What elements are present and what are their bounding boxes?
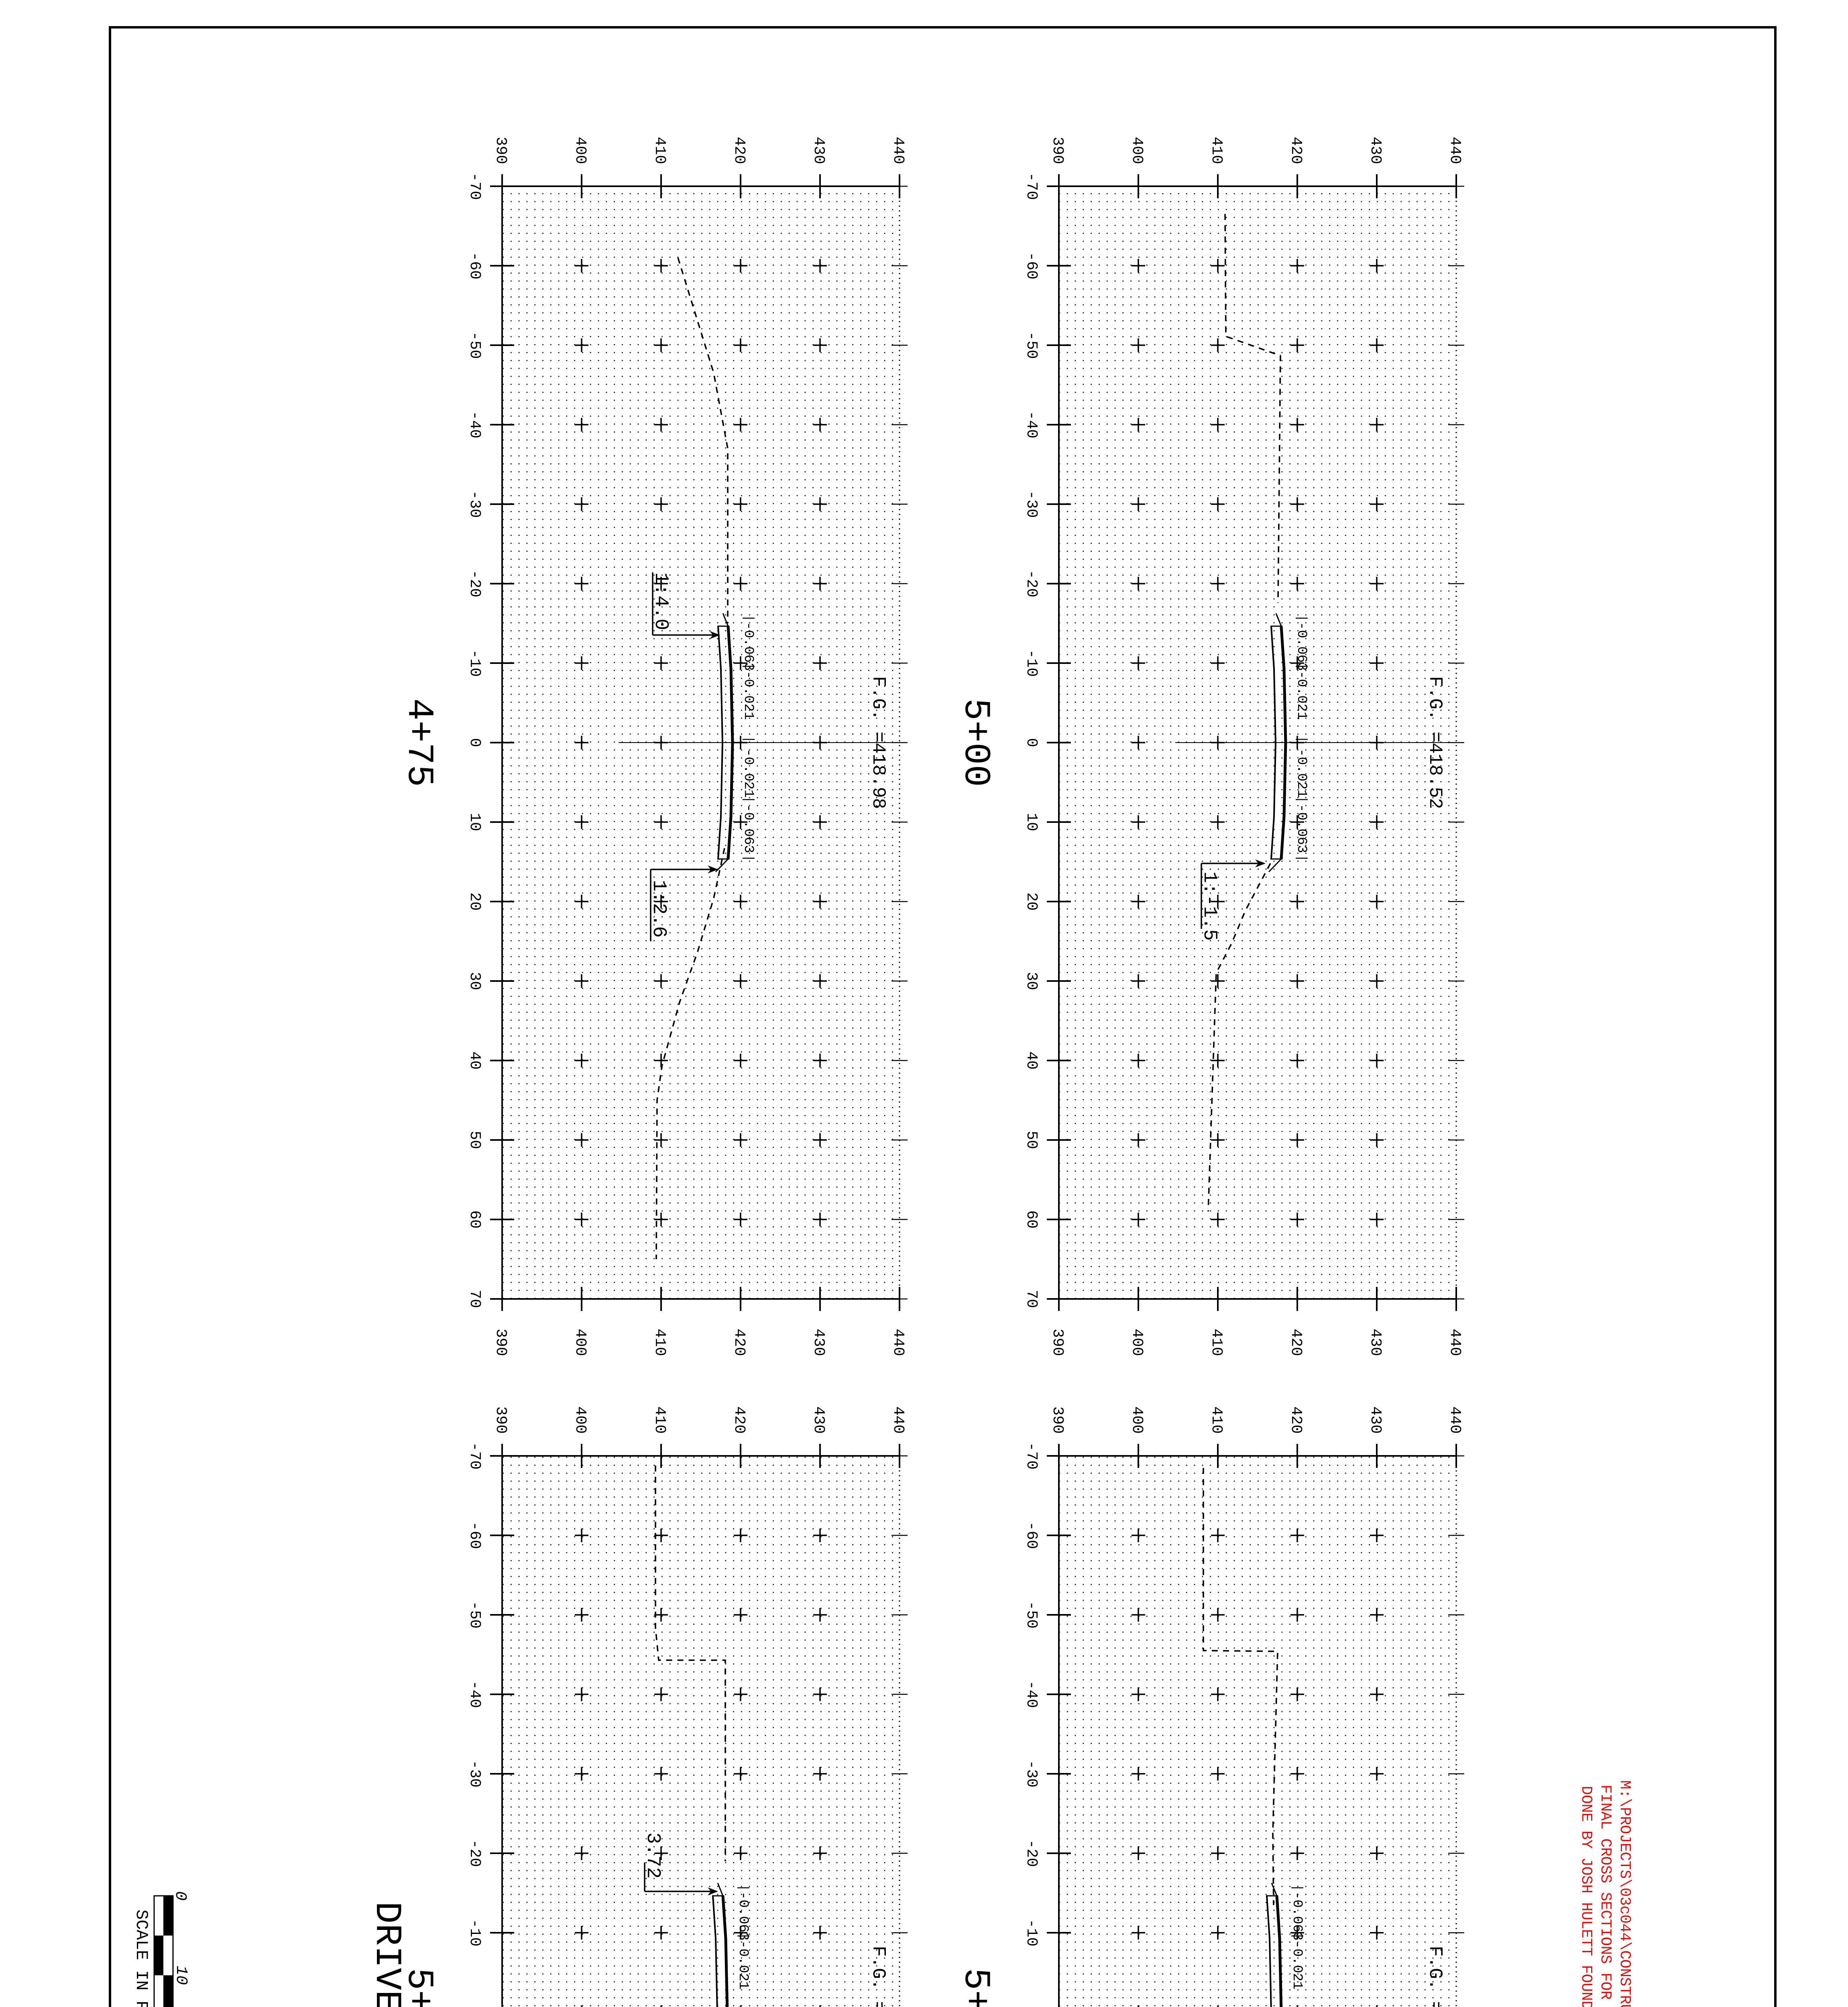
svg-text:-70: -70: [466, 1442, 483, 1470]
svg-text:-70: -70: [1023, 1442, 1040, 1470]
svg-text:390: 390: [492, 1407, 509, 1434]
svg-text:390: 390: [492, 137, 509, 164]
svg-text:420: 420: [731, 1407, 748, 1434]
svg-text:400: 400: [1128, 1329, 1146, 1356]
svg-text:-20: -20: [1023, 1840, 1040, 1867]
svg-text:-50: -50: [466, 1601, 483, 1628]
svg-text:430: 430: [1367, 137, 1384, 164]
svg-text:410: 410: [651, 1329, 668, 1356]
svg-text:400: 400: [572, 1407, 589, 1434]
svg-text:-30: -30: [1023, 491, 1040, 518]
svg-text:-0.021: -0.021: [1294, 671, 1309, 720]
svg-text:10: 10: [1023, 813, 1040, 831]
svg-text:-50: -50: [1023, 332, 1040, 359]
svg-text:0: 0: [171, 1891, 189, 1901]
svg-text:F.G. =418.52: F.G. =418.52: [1425, 676, 1445, 809]
svg-text:-60: -60: [1023, 252, 1040, 279]
svg-text:-30: -30: [1023, 1760, 1040, 1787]
svg-text:-20: -20: [466, 1840, 483, 1867]
svg-text:DONE BY JOSH HULETT FOUND IN T: DONE BY JOSH HULETT FOUND IN THE ABOVE F…: [1577, 1786, 1595, 2007]
svg-text:70: 70: [1023, 1290, 1040, 1308]
svg-text:420: 420: [731, 137, 748, 164]
svg-text:0: 0: [466, 738, 483, 747]
svg-text:390: 390: [1049, 1407, 1066, 1434]
svg-text:410: 410: [651, 137, 668, 164]
svg-text:-20: -20: [1023, 570, 1040, 597]
svg-text:-40: -40: [1023, 411, 1040, 438]
svg-text:440: 440: [1446, 1329, 1463, 1356]
svg-text:5+25: 5+25: [955, 1968, 997, 2007]
svg-text:F.G. =417.99: F.G. =417.99: [1425, 1946, 1445, 2007]
svg-text:430: 430: [810, 1329, 827, 1356]
svg-text:400: 400: [1128, 1407, 1146, 1434]
svg-text:420: 420: [1287, 1329, 1305, 1356]
svg-text:4+75: 4+75: [398, 698, 440, 787]
svg-text:50: 50: [466, 1131, 483, 1149]
svg-text:-60: -60: [1023, 1522, 1040, 1549]
svg-text:410: 410: [1208, 1407, 1225, 1434]
svg-text:40: 40: [1023, 1051, 1040, 1070]
svg-text:430: 430: [810, 1407, 827, 1434]
svg-text:-60: -60: [466, 252, 483, 279]
svg-text:40: 40: [466, 1051, 483, 1070]
svg-text:-60: -60: [466, 1522, 483, 1549]
svg-text:430: 430: [1367, 1407, 1384, 1434]
svg-text:70: 70: [466, 1290, 483, 1308]
svg-text:430: 430: [810, 137, 827, 164]
svg-text:-10: -10: [466, 1919, 483, 1946]
svg-text:390: 390: [492, 1329, 509, 1356]
svg-text:410: 410: [651, 1407, 668, 1434]
svg-text:-40: -40: [1023, 1681, 1040, 1708]
svg-text:60: 60: [1023, 1210, 1040, 1229]
svg-text:1:-1.5: 1:-1.5: [1199, 871, 1220, 941]
svg-text:440: 440: [889, 1329, 907, 1356]
svg-text:0: 0: [1023, 738, 1040, 747]
svg-text:20: 20: [466, 892, 483, 911]
svg-text:390: 390: [1049, 1329, 1066, 1356]
svg-text:60: 60: [466, 1210, 483, 1229]
svg-text:-10: -10: [466, 649, 483, 677]
svg-text:-70: -70: [1023, 173, 1040, 200]
svg-text:1:4.0: 1:4.0: [650, 572, 672, 630]
svg-text:420: 420: [1287, 1407, 1305, 1434]
svg-text:-0.021: -0.021: [741, 749, 756, 798]
svg-text:440: 440: [1446, 1407, 1463, 1434]
svg-text:-30: -30: [466, 1760, 483, 1787]
svg-text:-30: -30: [466, 491, 483, 518]
svg-text:410: 410: [1208, 137, 1225, 164]
svg-text:20: 20: [1023, 892, 1040, 911]
svg-text:440: 440: [889, 137, 907, 164]
svg-text:-0.021: -0.021: [735, 1940, 751, 1989]
svg-text:-0.063: -0.063: [1294, 804, 1309, 853]
svg-text:1:2.6: 1:2.6: [648, 880, 670, 938]
svg-text:440: 440: [889, 1407, 907, 1434]
svg-text:10: 10: [172, 1966, 190, 1985]
svg-text:30: 30: [1023, 972, 1040, 990]
svg-text:420: 420: [731, 1329, 748, 1356]
svg-text:3.72: 3.72: [642, 1832, 663, 1879]
svg-text:10: 10: [466, 813, 483, 831]
svg-text:F.G. =418.98: F.G. =418.98: [868, 676, 889, 809]
svg-text:-40: -40: [466, 1681, 483, 1708]
svg-text:-0.063: -0.063: [741, 804, 756, 853]
svg-text:5+00: 5+00: [955, 698, 997, 787]
svg-text:410: 410: [1208, 1329, 1225, 1356]
svg-text:400: 400: [572, 1329, 589, 1356]
svg-text:-0.021: -0.021: [741, 671, 756, 720]
svg-text:DRIVE LEFT: DRIVE LEFT: [366, 1901, 408, 2007]
svg-text:-0.021: -0.021: [1294, 749, 1309, 798]
svg-text:-0.063: -0.063: [1289, 1891, 1305, 1940]
svg-text:400: 400: [1128, 137, 1146, 164]
svg-text:-70: -70: [466, 173, 483, 200]
svg-text:-50: -50: [1023, 1601, 1040, 1628]
svg-text:50: 50: [1023, 1131, 1040, 1149]
svg-text:390: 390: [1049, 137, 1066, 164]
svg-text:30: 30: [466, 972, 483, 990]
svg-text:400: 400: [572, 137, 589, 164]
svg-text:-0.021: -0.021: [1289, 1940, 1305, 1989]
svg-text:-50: -50: [466, 332, 483, 359]
svg-text:FINAL CROSS SECTIONS FOR HUBBA: FINAL CROSS SECTIONS FOR HUBBARDTON ST 0…: [1597, 1785, 1614, 2007]
svg-text:M:\PROJECTS\03c044\CONSTRUCTIO: M:\PROJECTS\03c044\CONSTRUCTION\FINAL XS…: [1616, 1780, 1633, 2007]
svg-text:-10: -10: [1023, 1919, 1040, 1946]
svg-text:430: 430: [1367, 1329, 1384, 1356]
svg-text:F.G. =418.32: F.G. =418.32: [868, 1946, 889, 2007]
svg-text:-20: -20: [466, 570, 483, 597]
svg-text:-0.063: -0.063: [741, 622, 756, 671]
svg-text:-0.063: -0.063: [1294, 622, 1309, 671]
svg-text:-40: -40: [466, 411, 483, 438]
svg-text:440: 440: [1446, 137, 1463, 164]
svg-text:-0.063: -0.063: [735, 1891, 751, 1940]
svg-text:-10: -10: [1023, 649, 1040, 677]
svg-text:420: 420: [1287, 137, 1305, 164]
svg-text:SCALE IN FEET: SCALE IN FEET: [132, 1909, 151, 2007]
